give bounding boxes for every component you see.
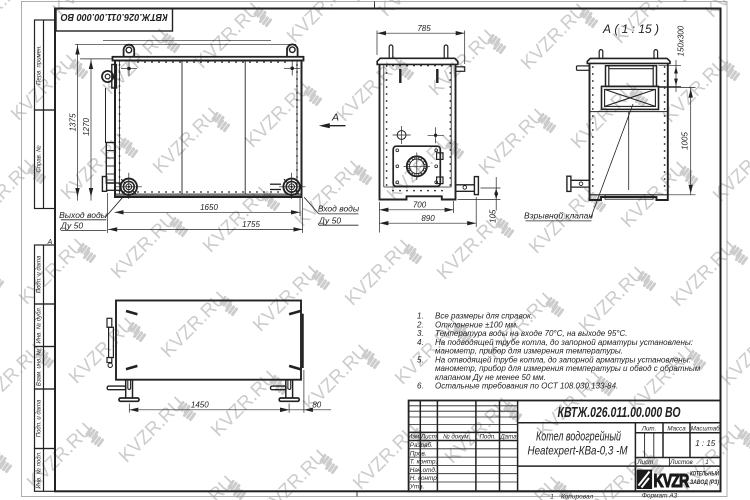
svg-text:Масса: Масса <box>667 425 686 432</box>
svg-text:Лист: Лист <box>420 434 437 441</box>
svg-text:Отклонение ±100 мм.: Отклонение ±100 мм. <box>435 320 518 329</box>
svg-text:1: 1 <box>705 459 708 466</box>
svg-text:1005: 1005 <box>681 132 690 150</box>
svg-text:Температура воды на входе 70°С: Температура воды на входе 70°С, на выход… <box>435 329 628 338</box>
svg-text:Вход воды: Вход воды <box>318 204 360 214</box>
svg-text:Перв. примен.: Перв. примен. <box>37 45 43 85</box>
svg-text:КВТЖ.026.011.00.000 ВО: КВТЖ.026.011.00.000 ВО <box>558 404 681 421</box>
svg-text:Справ. №: Справ. № <box>36 145 43 173</box>
svg-text:Разраб.: Разраб. <box>410 441 433 449</box>
svg-text:Подп.: Подп. <box>479 434 495 441</box>
svg-text:KVZR: KVZR <box>654 471 690 491</box>
svg-text:Дата: Дата <box>499 434 517 441</box>
svg-text:1450: 1450 <box>191 401 209 410</box>
svg-text:Н. контр.: Н. контр. <box>410 475 439 482</box>
svg-text:А ( 1 : 15 ): А ( 1 : 15 ) <box>602 22 659 36</box>
svg-text:А: А <box>331 112 339 124</box>
svg-text:Котел водогрейный: Котел водогрейный <box>536 430 621 444</box>
svg-text:Инв. № дубл.: Инв. № дубл. <box>36 307 43 344</box>
svg-text:4.: 4. <box>417 338 424 347</box>
svg-text:3.: 3. <box>417 329 424 338</box>
svg-text:Все размеры для справок.: Все размеры для справок. <box>435 312 533 321</box>
svg-text:Масштаб: Масштаб <box>691 425 720 432</box>
svg-text:Ду 50: Ду 50 <box>60 221 83 231</box>
svg-text:Подп. и дата: Подп. и дата <box>37 255 43 293</box>
svg-text:80: 80 <box>312 401 321 410</box>
svg-text:Утв.: Утв. <box>409 484 425 491</box>
svg-text:1.: 1. <box>417 312 424 321</box>
svg-text:1755: 1755 <box>242 220 260 229</box>
svg-text:Нач.отд.: Нач.отд. <box>410 466 437 474</box>
svg-text:манометр, прибор для измерения: манометр, прибор для измерения температу… <box>435 364 701 373</box>
svg-text:Heatexpert-КВа-0,3 -М: Heatexpert-КВа-0,3 -М <box>528 444 628 458</box>
svg-text:1650: 1650 <box>200 203 218 212</box>
svg-text:Выход воды: Выход воды <box>59 210 108 220</box>
svg-text:Пров.: Пров. <box>410 450 427 457</box>
svg-text:Инв. № подл.: Инв. № подл. <box>36 451 43 488</box>
svg-text:На отводящей трубе котла, до з: На отводящей трубе котла, до запорной ар… <box>435 355 691 364</box>
svg-text:КВТЖ.026.011.00.000 ВО: КВТЖ.026.011.00.000 ВО <box>61 11 168 22</box>
svg-text:Копировал: Копировал <box>561 493 594 500</box>
svg-text:КОТЕЛЬНЫЙ: КОТЕЛЬНЫЙ <box>690 469 719 478</box>
svg-text:2.: 2. <box>416 320 424 329</box>
svg-text:Лист: Лист <box>636 459 653 466</box>
svg-text:Формат А3: Формат А3 <box>642 493 678 500</box>
svg-text:700: 700 <box>413 201 427 210</box>
svg-text:105: 105 <box>489 209 498 223</box>
svg-text:1: 1 <box>550 493 554 500</box>
svg-text:Взрывной клапан: Взрывной клапан <box>524 210 593 220</box>
svg-text:5.: 5. <box>417 355 424 364</box>
svg-text:ЗАВОД (РЗ): ЗАВОД (РЗ) <box>690 479 719 486</box>
svg-text:1270: 1270 <box>82 118 91 136</box>
svg-text:Остальные требования по ОСТ 10: Остальные требования по ОСТ 108.030.133-… <box>435 382 618 391</box>
svg-text:Листов: Листов <box>669 459 693 466</box>
svg-text:№ докум.: № докум. <box>443 434 470 441</box>
svg-text:890: 890 <box>421 214 435 223</box>
svg-text:1375: 1375 <box>68 113 77 131</box>
svg-text:150х300: 150х300 <box>677 25 686 56</box>
svg-text:785: 785 <box>417 24 431 33</box>
svg-text:Подп. и дата: Подп. и дата <box>37 399 43 437</box>
svg-text:1 : 15: 1 : 15 <box>695 439 716 448</box>
svg-text:6.: 6. <box>417 382 424 391</box>
svg-text:Изм.: Изм. <box>408 434 421 441</box>
svg-text:Лит.: Лит. <box>641 425 657 432</box>
svg-text:Ду 50: Ду 50 <box>318 215 341 225</box>
svg-text:На подводящей трубе котла, до: На подводящей трубе котла, до запорной а… <box>435 338 693 347</box>
svg-text:манометр, прибор для измерения: манометр, прибор для измерения температу… <box>435 347 623 356</box>
svg-text:Взам. инв. №: Взам. инв. № <box>36 348 43 386</box>
svg-text:Т. контр.: Т. контр. <box>410 459 438 466</box>
svg-text:клапаном Ду не менее 50 мм.: клапаном Ду не менее 50 мм. <box>435 373 546 382</box>
